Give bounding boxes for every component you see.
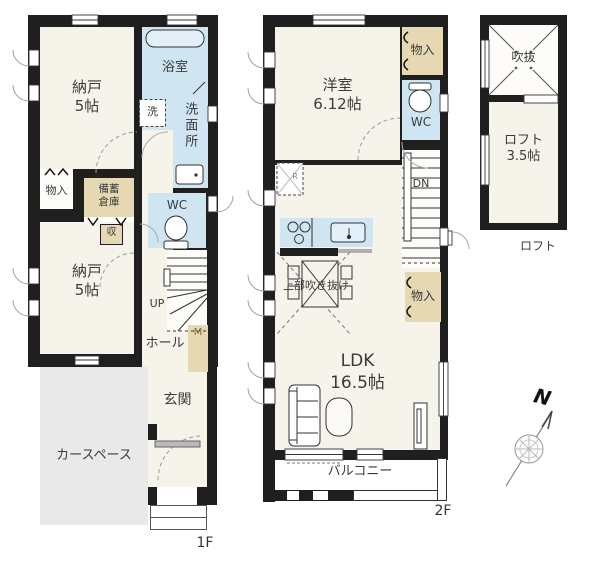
- label-stairs-up: UP: [144, 297, 170, 311]
- label-closet-2f-top: 物入: [402, 43, 443, 58]
- label-refrigerator: R: [288, 172, 302, 182]
- compass-icon: [506, 411, 552, 486]
- floor-plan-canvas: 納戸 5帖 浴室 洗面所 洗 物入 備蓄 倉庫 収 WC 納戸 5帖 UP M …: [0, 0, 600, 565]
- label-void: 吹抜: [489, 50, 558, 65]
- label-floor-2f: 2F: [426, 503, 460, 521]
- label-washer-space: 洗: [139, 105, 166, 119]
- label-hall: ホール: [138, 336, 192, 352]
- label-western-room: 洋室 6.12帖: [275, 76, 400, 114]
- label-washroom: 洗面所: [181, 102, 197, 150]
- label-bath: 浴室: [142, 60, 208, 76]
- side-table-icon: [326, 398, 352, 436]
- label-storage-top-1f: 納戸 5帖: [40, 78, 134, 116]
- label-stairs-down: DN: [406, 177, 436, 191]
- label-small-storage: 収: [100, 227, 123, 240]
- label-ldk: LDK 16.5帖: [275, 350, 440, 394]
- label-balcony: バルコニー: [280, 464, 440, 480]
- label-wc-2f: WC: [402, 115, 440, 130]
- label-entrance: 玄関: [148, 392, 207, 410]
- label-loft-caption: ロフト: [508, 239, 568, 254]
- stairs-1f-steps: [164, 258, 207, 331]
- stairs-2f-steps: [402, 153, 440, 263]
- toilet-icon-2f: [409, 83, 431, 112]
- label-stockpile-storage: 備蓄 倉庫: [84, 183, 134, 208]
- label-storage-bottom-1f: 納戸 5帖: [40, 262, 134, 300]
- label-closet-2f-bottom: 物入: [405, 289, 441, 304]
- kitchen-counter-icon: [280, 218, 372, 256]
- label-closet-1f: 物入: [40, 184, 73, 198]
- bathtub-icon: [146, 30, 204, 47]
- tv-board-icon: [414, 403, 427, 449]
- label-void-above: 上部吹き抜け: [277, 279, 355, 293]
- toilet-icon-1f: [164, 216, 188, 249]
- washbasin-icon: [176, 165, 203, 184]
- label-wc-1f: WC: [148, 198, 206, 213]
- entrance-door-bar: [155, 441, 200, 447]
- label-floor-1f: 1F: [188, 535, 222, 553]
- label-car-space: カースペース: [44, 448, 144, 464]
- label-loft-room: ロフト 3.5帖: [489, 133, 558, 166]
